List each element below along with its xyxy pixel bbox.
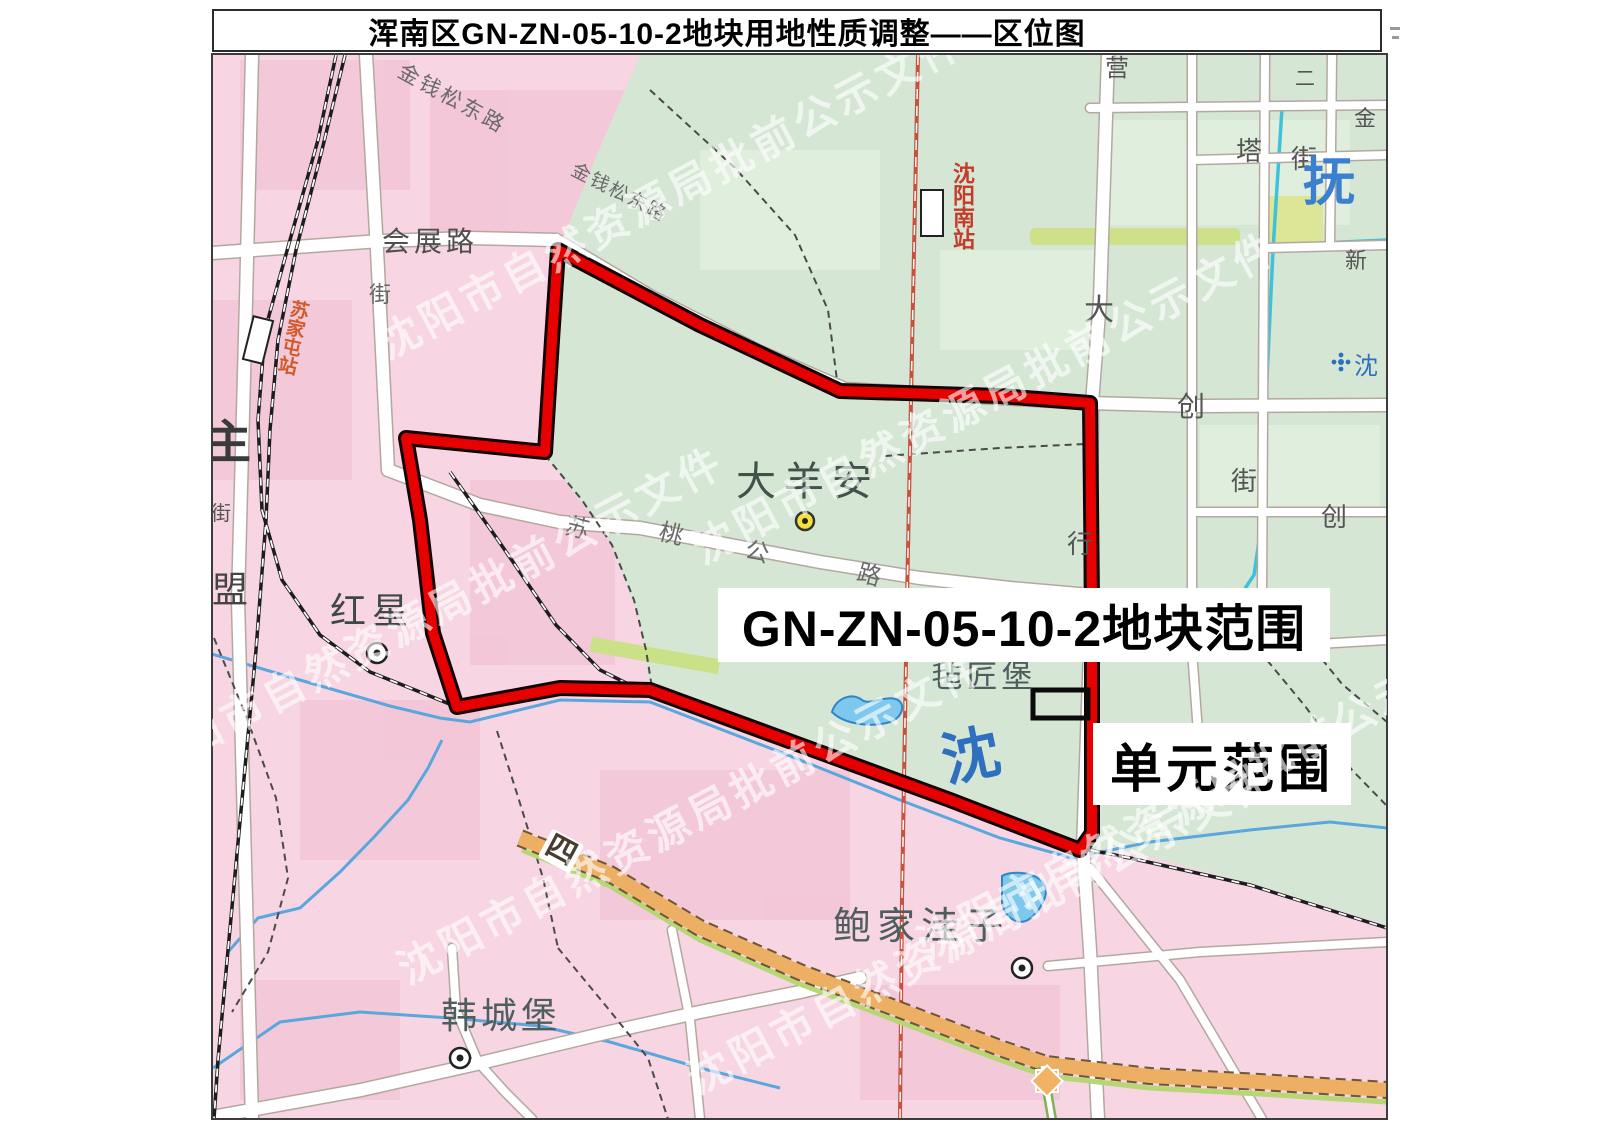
margin-artifact xyxy=(1390,27,1400,30)
parcel-range-callout: GN-ZN-05-10-2地块范围 xyxy=(718,588,1330,662)
unit-range-callout: 单元范围 xyxy=(1093,723,1351,805)
station-marker-shenyangnan xyxy=(921,190,943,236)
title-bar: 浑南区GN-ZN-05-10-2地块用地性质调整——区位图 xyxy=(212,9,1382,52)
page-title: 浑南区GN-ZN-05-10-2地块用地性质调整——区位图 xyxy=(368,9,1225,53)
interchange-icon xyxy=(1031,1065,1062,1096)
margin-artifact xyxy=(1392,36,1399,39)
greenway-strip xyxy=(1030,228,1240,245)
location-map xyxy=(0,0,1600,1130)
page: 会展路金钱松东路金钱松东路街主街盟红星大羊安毡匠堡鲍家洼子韩城堡苏桃公路大行创街… xyxy=(0,0,1600,1130)
